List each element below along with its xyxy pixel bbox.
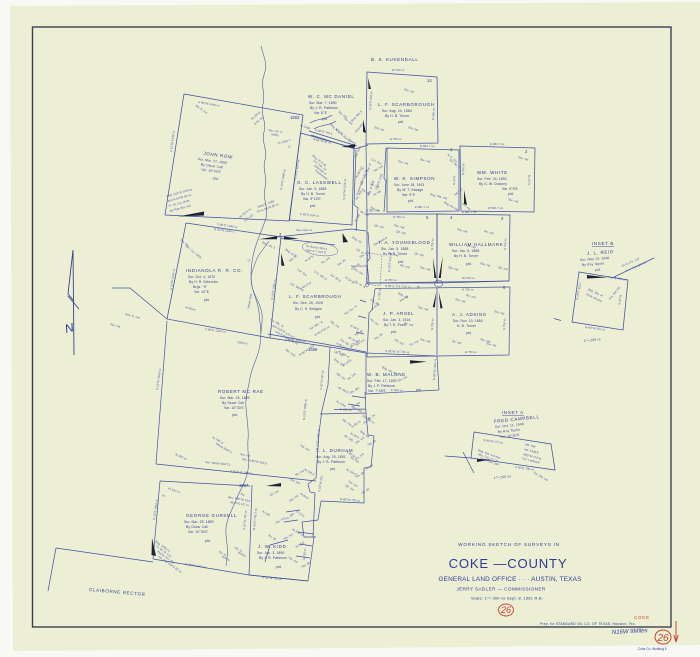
svg-text:N 750 vs: N 750 vs [393, 215, 405, 219]
svg-text:Sur. Feb. 17, 1892: Sur. Feb. 17, 1892 [367, 379, 397, 383]
svg-text:ptd.: ptd. [508, 192, 514, 196]
svg-text:26: 26 [656, 633, 669, 644]
svg-text:Sur. Mar. 7, 1890: Sur. Mar. 7, 1890 [309, 101, 337, 105]
svg-text:ptd.: ptd. [204, 298, 210, 302]
svg-text:Sur. Nov. 10, 1884: Sur. Nov. 10, 1884 [453, 319, 483, 323]
svg-text:By H. B. Torver: By H. B. Torver [385, 114, 410, 118]
svg-text:By H. B. Torver: By H. B. Torver [301, 192, 326, 196]
svg-text:N 10°E: N 10°E [452, 175, 456, 185]
svg-text:E 981.7 vs: E 981.7 vs [462, 210, 477, 214]
svg-text:E 981.7 vs: E 981.7 vs [415, 205, 430, 209]
svg-text:ptd.: ptd. [595, 268, 601, 272]
svg-text:J. P. ARSEL: J. P. ARSEL [383, 311, 414, 316]
svg-text:E 750 vs: E 750 vs [390, 137, 402, 141]
svg-text:Var. 7°45'E: Var. 7°45'E [368, 389, 386, 393]
svg-text:Sur. Jan. 5, 1888: Sur. Jan. 5, 1888 [381, 247, 408, 251]
svg-text:INDIANOLA R. R. CO.: INDIANOLA R. R. CO. [186, 268, 243, 273]
svg-text:N 750 vs: N 750 vs [430, 318, 434, 330]
svg-text:WORKING SKETCH OF SURVEYS: WORKING SKETCH OF SURVEYS IN [458, 542, 560, 547]
svg-text:By J. R. Patteson: By J. R. Patteson [259, 556, 287, 560]
svg-text:Sur. Mar. 25, 1859: Sur. Mar. 25, 1859 [220, 396, 250, 400]
svg-text:Var. 10°30'E: Var. 10°30'E [188, 530, 208, 534]
svg-text:ptd.: ptd. [466, 262, 472, 266]
svg-text:N 981.7 vs: N 981.7 vs [420, 144, 435, 148]
svg-text:W 981.7 vs: W 981.7 vs [488, 206, 503, 210]
svg-text:E 750 vs: E 750 vs [465, 350, 477, 354]
svg-text:By J. P. Patteson: By J. P. Patteson [368, 384, 395, 388]
svg-text:Sur. Aug. 25, 1891: Sur. Aug. 25, 1891 [316, 455, 346, 459]
svg-text:Var. 9°E: Var. 9°E [402, 193, 416, 197]
svg-text:GEORGE GURKELL: GEORGE GURKELL [186, 513, 237, 518]
svg-text:W 750 vs: W 750 vs [462, 276, 475, 280]
svg-text:INSET A: INSET A [502, 410, 524, 415]
svg-text:B. S. KUKENDALL: B. S. KUKENDALL [371, 57, 419, 62]
svg-text:COKE: COKE [634, 615, 650, 620]
svg-text:S 750 vs: S 750 vs [502, 318, 506, 330]
svg-text:See Inset 'A': See Inset 'A' [296, 228, 313, 232]
svg-text:S 750 vs: S 750 vs [503, 238, 507, 250]
svg-text:N 950 vs: N 950 vs [431, 108, 436, 121]
svg-text:Sur. Jan. 3, 1890: Sur. Jan. 3, 1890 [257, 551, 284, 555]
svg-text:ptd.: ptd. [398, 120, 404, 124]
svg-text:Sur. Jan. 5, 1888: Sur. Jan. 5, 1888 [299, 187, 326, 191]
svg-text:E 699 vs: E 699 vs [391, 388, 403, 392]
svg-text:Var. 10°E: Var. 10°E [194, 290, 210, 294]
svg-text:N 750 vs: N 750 vs [462, 288, 474, 292]
svg-text:J. W. KIDD: J. W. KIDD [258, 544, 287, 549]
svg-text:ptd.: ptd. [466, 331, 472, 335]
svg-text:ptd.: ptd. [310, 204, 316, 208]
svg-text:14: 14 [427, 78, 432, 83]
svg-text:Var. 9°5'E: Var. 9°5'E [502, 187, 519, 191]
svg-text:By G. W. Downey: By G. W. Downey [479, 182, 507, 186]
svg-text:ptd.: ptd. [205, 539, 211, 543]
svg-text:W 750 vs: W 750 vs [392, 68, 405, 72]
svg-text:Sur. Jan. 5, 1888: Sur. Jan. 5, 1888 [452, 249, 479, 253]
svg-text:Var. 9°15'E: Var. 9°15'E [303, 197, 321, 201]
svg-text:ptd.: ptd. [315, 315, 321, 319]
svg-text:L. F. SCARBROUGH: L. F. SCARBROUGH [289, 294, 341, 299]
svg-text:Coke Co. Working 5: Coke Co. Working 5 [638, 647, 667, 651]
svg-text:By Oscar Call: By Oscar Call [222, 401, 244, 405]
svg-text:ptd.: ptd. [416, 388, 422, 392]
svg-text:ptd.: ptd. [408, 199, 414, 203]
svg-text:COKE —COUNTY: COKE —COUNTY [449, 556, 568, 571]
svg-text:W. B. MALONE: W. B. MALONE [367, 372, 406, 377]
svg-text:ptd.: ptd. [232, 413, 238, 417]
svg-text:A. J. ADKINS: A. J. ADKINS [452, 312, 487, 317]
svg-text:N 750 vs: N 750 vs [461, 163, 465, 175]
svg-text:Sur. Aug. 24, 1884: Sur. Aug. 24, 1884 [382, 109, 412, 113]
svg-text:By Oscar Call: By Oscar Call [186, 525, 208, 529]
svg-text:W. K. SIMPSON: W. K. SIMPSON [394, 176, 435, 181]
svg-text:G. C. LASSWELL: G. C. LASSWELL [297, 180, 342, 185]
svg-text:Var. 10°30'E: Var. 10°30'E [224, 406, 244, 410]
svg-text:By W. T. Savage: By W. T. Savage [397, 188, 423, 192]
svg-text:Sur. Feb. 24, 1892: Sur. Feb. 24, 1892 [477, 177, 507, 181]
svg-text:W. C. MC DANIEL: W. C. MC DANIEL [308, 94, 355, 99]
svg-text:ptd.: ptd. [330, 467, 336, 471]
svg-text:ROBERT MC RAE: ROBERT MC RAE [218, 389, 264, 394]
svg-text:26: 26 [500, 605, 511, 615]
svg-text:S 10°W: S 10°W [527, 175, 531, 185]
svg-text:WILLIAM HALLMARK: WILLIAM HALLMARK [449, 242, 503, 247]
svg-text:By J. R. Patteson: By J. R. Patteson [310, 106, 338, 110]
svg-text:Sur. Oct. 4, 1870: Sur. Oct. 4, 1870 [188, 275, 215, 279]
svg-text:Sur. Mar. 25, 1859: Sur. Mar. 25, 1859 [184, 520, 214, 524]
svg-text:ptd.: ptd. [391, 330, 397, 334]
svg-text:Scale: 1"= 300 vs Sept. 8, 1: Scale: 1"= 300 vs Sept. 8, 1961 R.B. [471, 596, 543, 601]
svg-text:ptd.: ptd. [276, 565, 282, 569]
svg-text:By C. H. Bridges: By C. H. Bridges [295, 307, 322, 311]
svg-text:E 981.7 vs: E 981.7 vs [490, 142, 505, 146]
svg-text:N 750 vs: N 750 vs [430, 238, 434, 250]
svg-text:WM. WHITE: WM. WHITE [477, 170, 508, 175]
svg-text:T. A. YOUNGBLOOD: T. A. YOUNGBLOOD [378, 240, 431, 245]
svg-text:By H. B. Torver: By H. B. Torver [454, 254, 479, 258]
svg-text:GENERAL LAND OFFICE · · · AU: GENERAL LAND OFFICE · · · AUSTIN, TEXAS [438, 576, 581, 583]
svg-text:H. B. Torver: H. B. Torver [457, 324, 477, 328]
svg-text:Sur. June 18, 1903: Sur. June 18, 1903 [394, 183, 424, 187]
svg-text:By H. R. Biberstin: By H. R. Biberstin [189, 280, 218, 284]
svg-text:1593: 1593 [290, 115, 300, 120]
svg-text:Prep. for STANDARD OIL CO. OF: Prep. for STANDARD OIL CO. OF TEXAS, Hou… [540, 622, 636, 626]
svg-text:ptd.: ptd. [213, 176, 220, 181]
svg-text:By T. E. Puett: By T. E. Puett [384, 323, 406, 327]
svg-text:Var. 8°E: Var. 8°E [314, 111, 328, 115]
svg-text:E 750 vs: E 750 vs [385, 278, 397, 282]
svg-text:Brgs. "K": Brgs. "K" [193, 285, 208, 289]
svg-text:Sur. Dec. 26, 1928: Sur. Dec. 26, 1928 [293, 301, 323, 305]
svg-text:By J. R. Patteson: By J. R. Patteson [317, 460, 345, 464]
svg-text:L. F. SCARBOROUGH: L. F. SCARBOROUGH [378, 102, 435, 107]
svg-text:JERRY SADLER — COMMISSIONER: JERRY SADLER — COMMISSIONER [456, 587, 546, 592]
svg-text:INSET B: INSET B [592, 241, 614, 246]
